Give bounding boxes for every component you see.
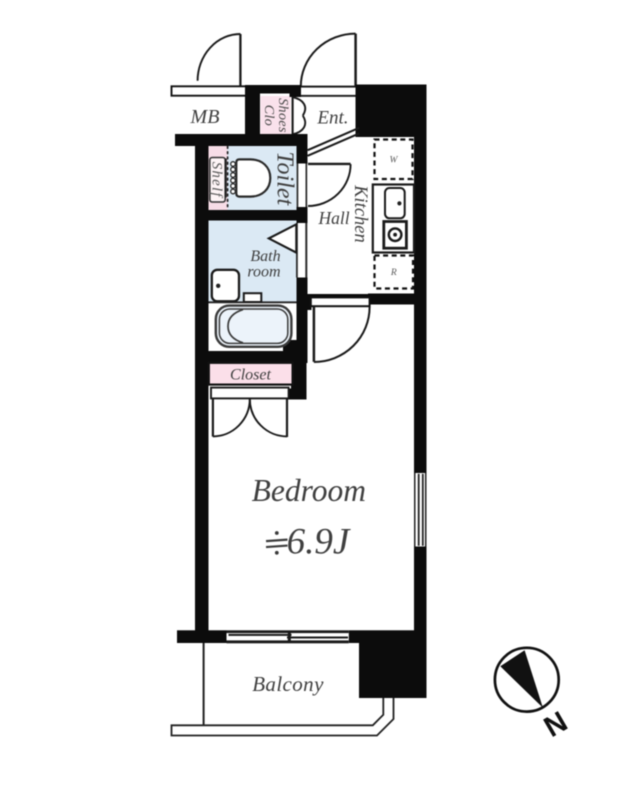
svg-text:Kitchen: Kitchen — [350, 184, 370, 243]
svg-text:Shelf: Shelf — [208, 162, 224, 199]
svg-text:W: W — [390, 156, 399, 166]
svg-text:Bedroom: Bedroom — [252, 473, 366, 508]
svg-text:6.9J: 6.9J — [287, 522, 351, 563]
svg-text:Toilet: Toilet — [272, 151, 298, 206]
svg-text:R: R — [390, 268, 397, 278]
svg-text:Bath: Bath — [250, 248, 280, 265]
svg-text:room: room — [247, 264, 280, 281]
svg-text:Closet: Closet — [230, 367, 271, 384]
svg-text:Balcony: Balcony — [252, 672, 324, 696]
svg-text:Ent.: Ent. — [316, 108, 348, 129]
svg-text:Hall: Hall — [317, 208, 349, 228]
svg-text:MB: MB — [190, 106, 220, 128]
